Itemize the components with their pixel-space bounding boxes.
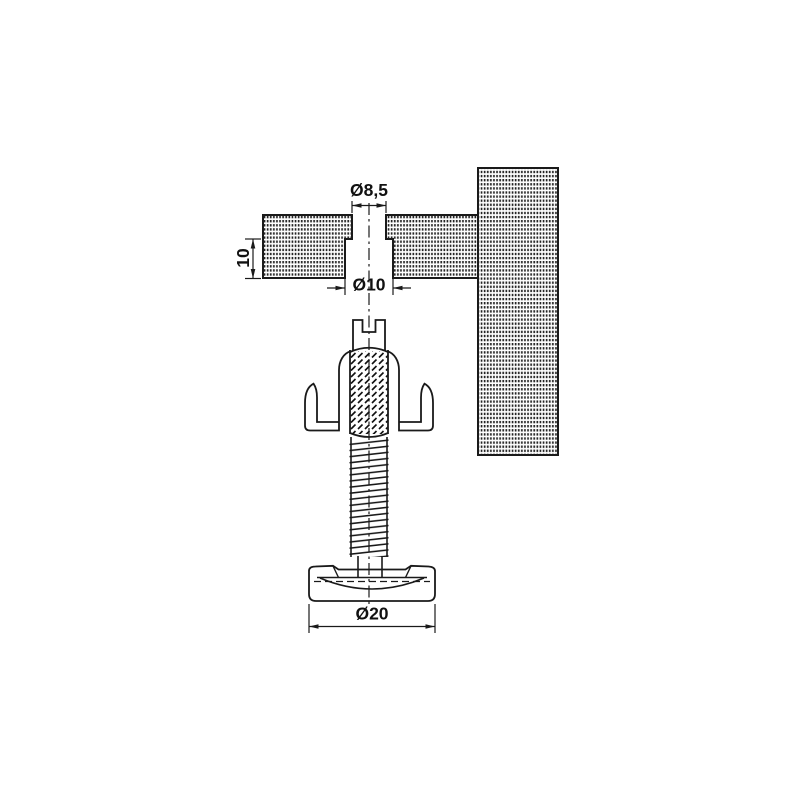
horizontal-panel-right-section [386,215,478,278]
vertical-panel [478,168,558,455]
background [0,0,800,800]
dim-foot-diameter-label: Ø20 [355,604,388,624]
dim-recess-depth-label: 10 [233,248,253,268]
technical-drawing-canvas: Ø8,5 10 Ø10 [0,0,800,800]
horizontal-panel-left-section [263,215,352,278]
foot-outline [309,566,435,601]
dim-pilot-hole-label: Ø8,5 [350,180,388,200]
